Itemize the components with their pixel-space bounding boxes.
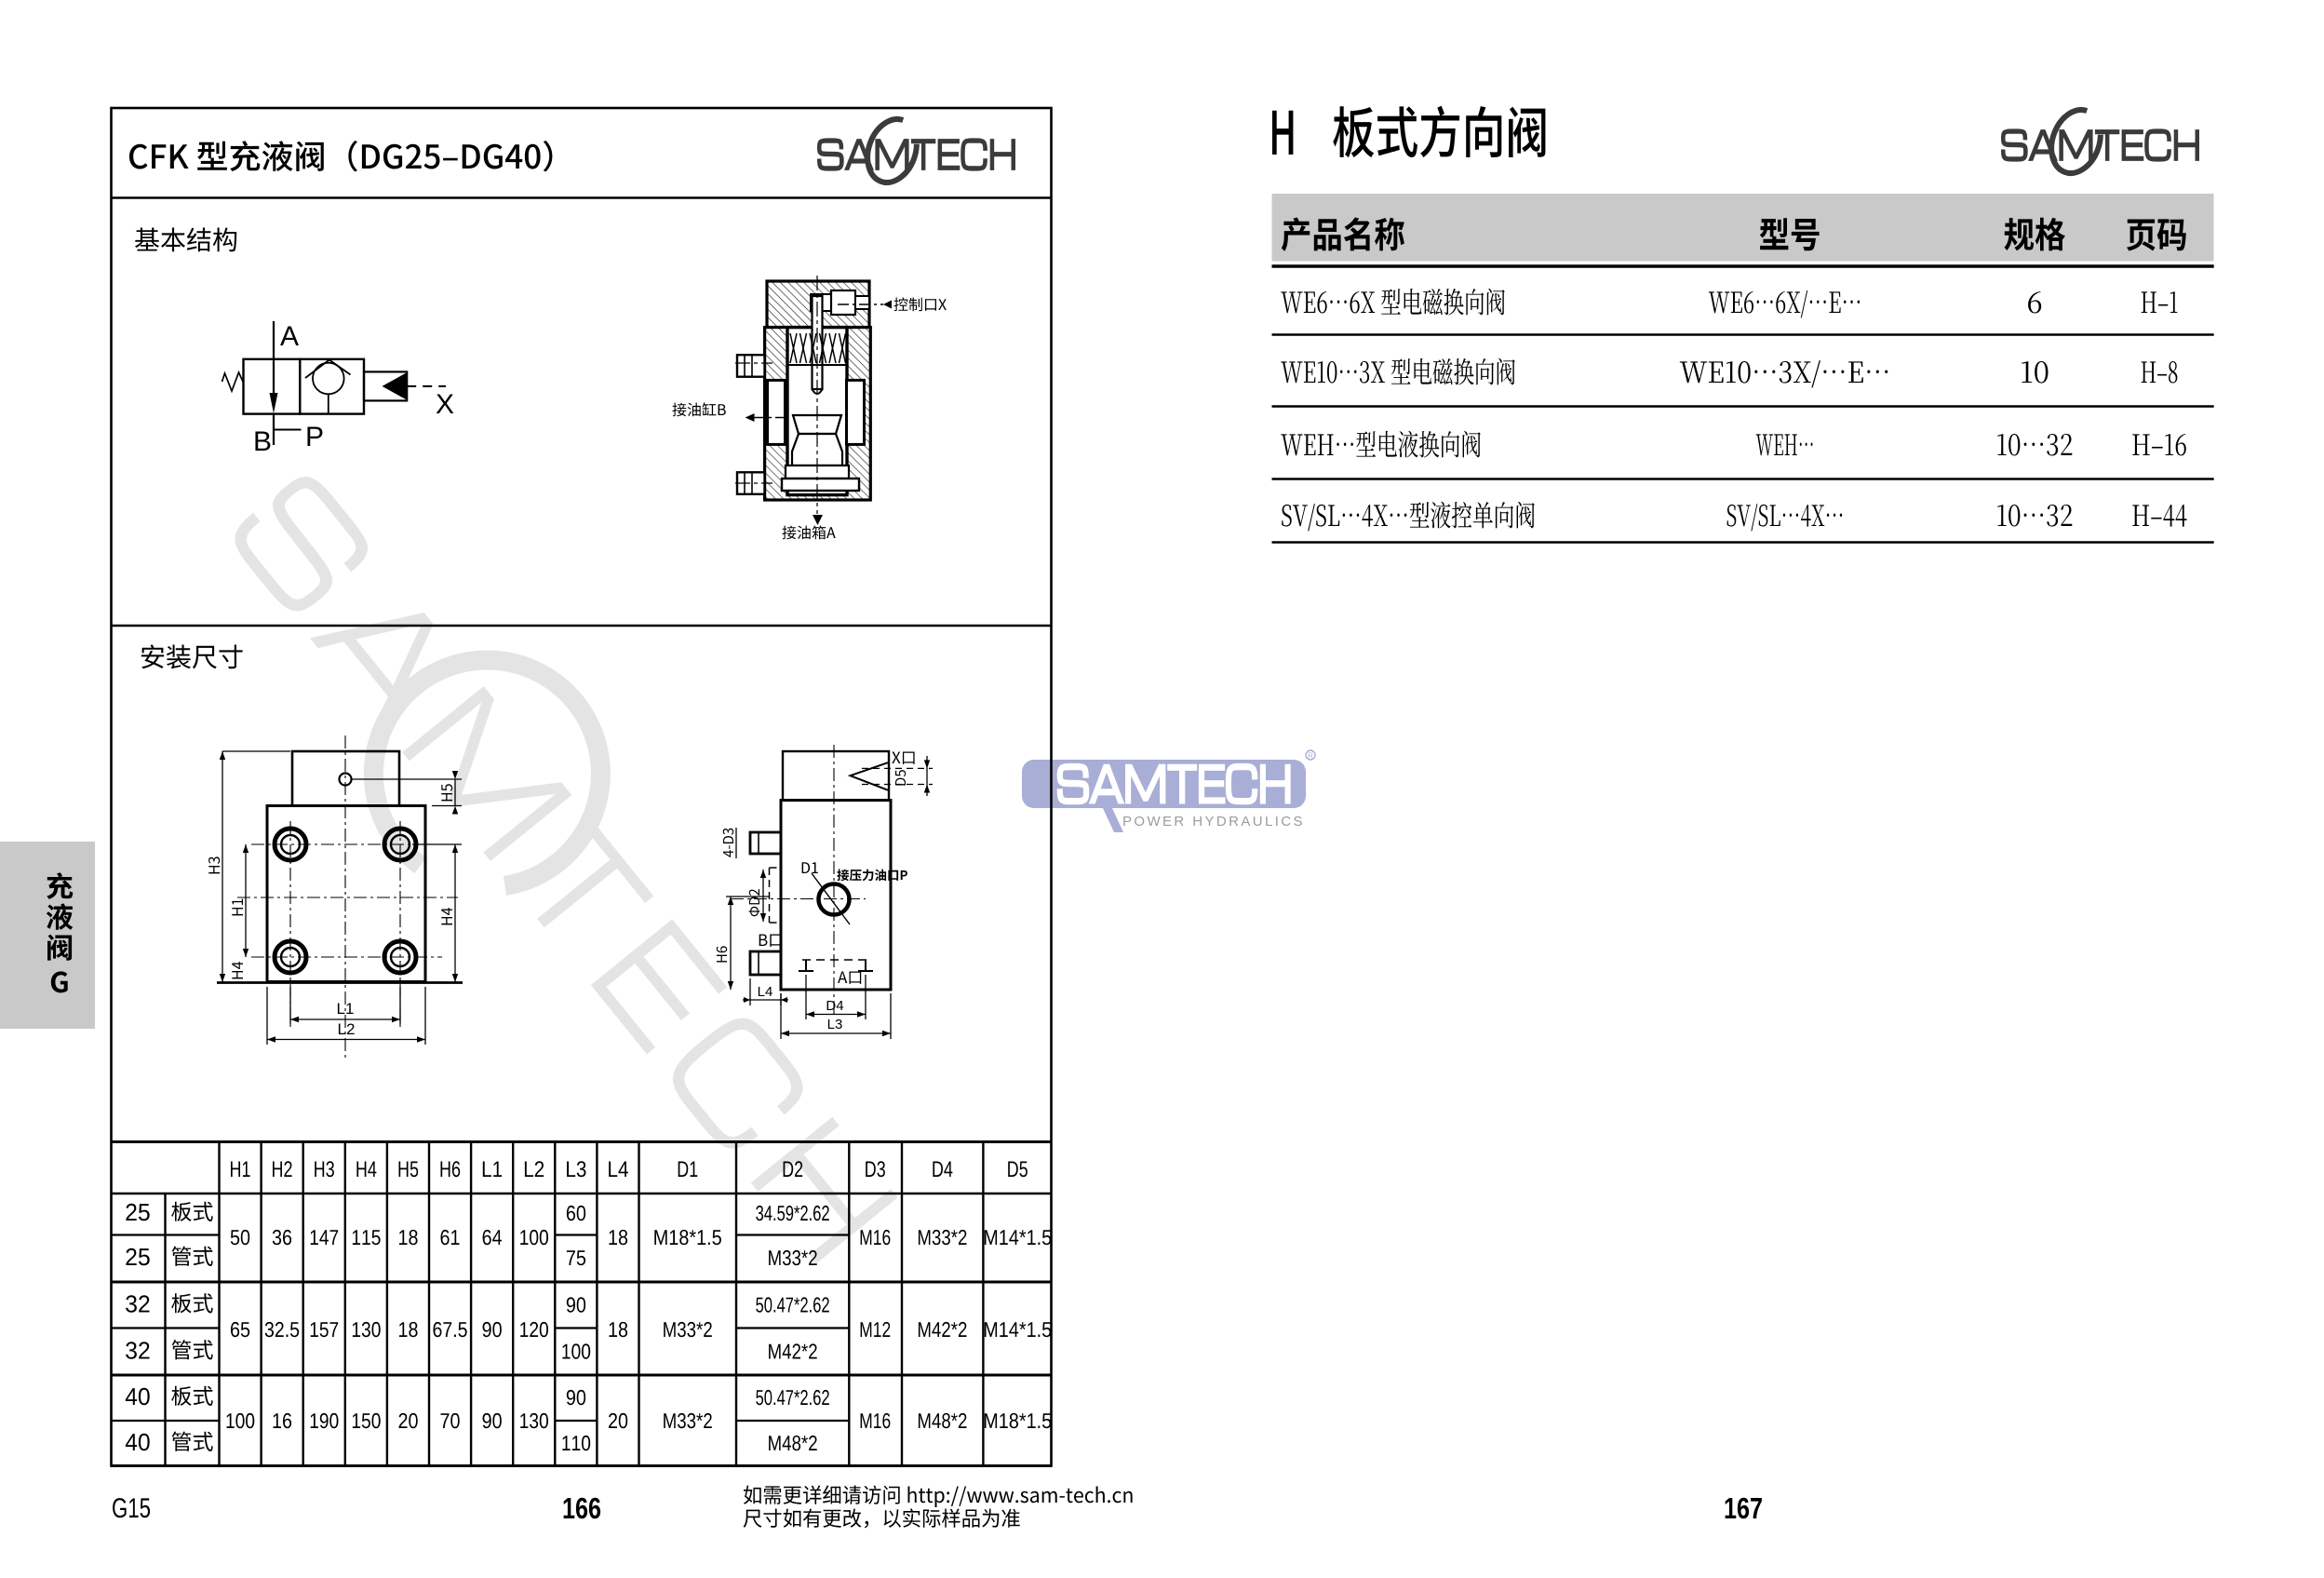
svg-text:D4: D4 [826, 998, 843, 1014]
svg-text:X: X [436, 389, 454, 420]
svg-text:P: P [305, 422, 324, 452]
svg-text:R: R [1308, 752, 1313, 761]
svg-text:L1: L1 [337, 1000, 355, 1018]
svg-text:L3: L3 [827, 1017, 843, 1032]
svg-text:POWER HYDRAULICS: POWER HYDRAULICS [1122, 814, 1305, 829]
svg-text:B: B [253, 426, 272, 457]
svg-text:L4: L4 [758, 984, 773, 1000]
svg-text:A: A [280, 321, 299, 352]
svg-text:L2: L2 [338, 1020, 356, 1038]
